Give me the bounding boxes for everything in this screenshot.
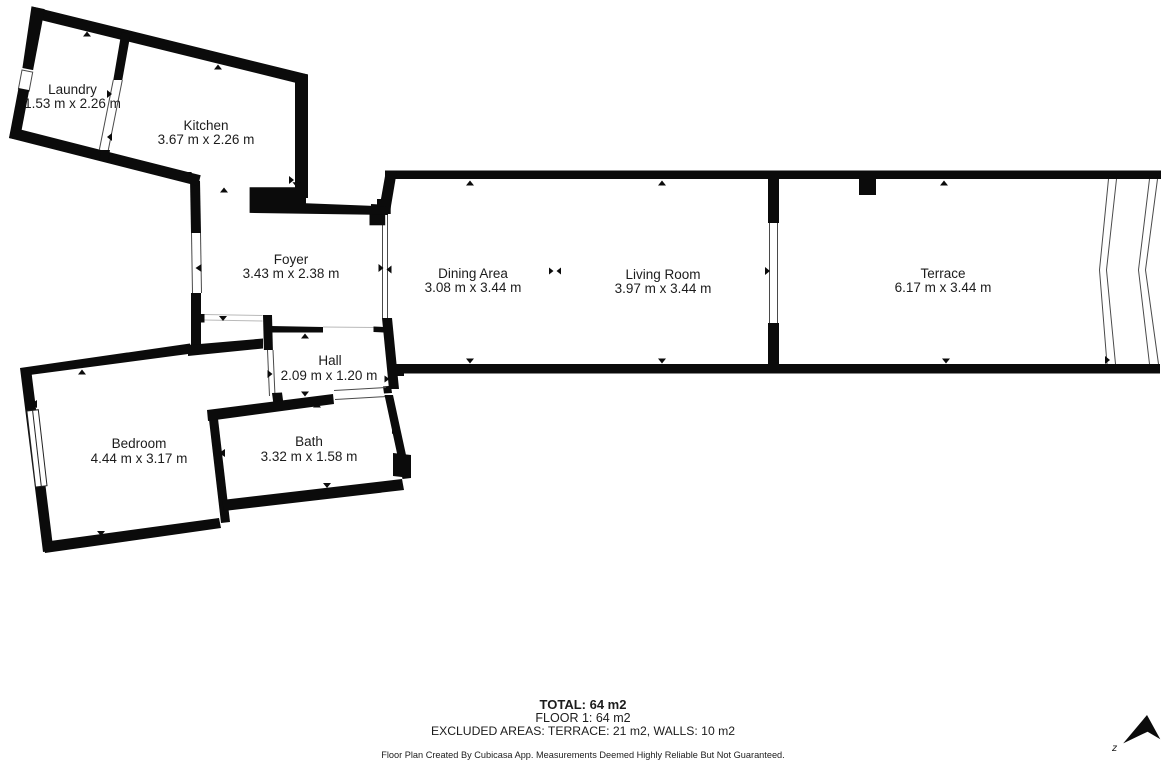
svg-text:Bedroom: Bedroom [112,436,167,451]
svg-text:3.67 m x 2.26 m: 3.67 m x 2.26 m [158,132,255,147]
svg-text:Laundry: Laundry [48,82,97,97]
svg-text:2.09 m x 1.20 m: 2.09 m x 1.20 m [281,368,378,383]
svg-text:3.43 m x 2.38 m: 3.43 m x 2.38 m [243,266,340,281]
svg-text:1.53 m x 2.26 m: 1.53 m x 2.26 m [24,96,121,111]
svg-text:Dining Area: Dining Area [438,266,508,281]
svg-text:3.32 m x 1.58 m: 3.32 m x 1.58 m [261,449,358,464]
svg-text:z: z [1111,742,1118,754]
svg-text:Floor Plan Created By Cubicasa: Floor Plan Created By Cubicasa App. Meas… [381,750,784,760]
svg-text:Hall: Hall [318,353,341,368]
svg-text:3.08 m x 3.44 m: 3.08 m x 3.44 m [425,280,522,295]
svg-text:FLOOR 1: 64 m2: FLOOR 1: 64 m2 [535,711,630,725]
svg-text:Living Room: Living Room [625,267,700,282]
svg-text:Terrace: Terrace [920,266,965,281]
svg-text:Foyer: Foyer [274,252,309,267]
svg-text:Bath: Bath [295,434,323,449]
svg-text:TOTAL: 64 m2: TOTAL: 64 m2 [540,697,627,712]
svg-text:EXCLUDED AREAS: TERRACE: 21 m2: EXCLUDED AREAS: TERRACE: 21 m2, WALLS: 1… [431,724,735,738]
svg-text:Kitchen: Kitchen [183,118,228,133]
svg-text:3.97 m x 3.44 m: 3.97 m x 3.44 m [615,281,712,296]
svg-text:4.44 m x 3.17 m: 4.44 m x 3.17 m [91,451,188,466]
svg-text:6.17 m x 3.44 m: 6.17 m x 3.44 m [895,280,992,295]
